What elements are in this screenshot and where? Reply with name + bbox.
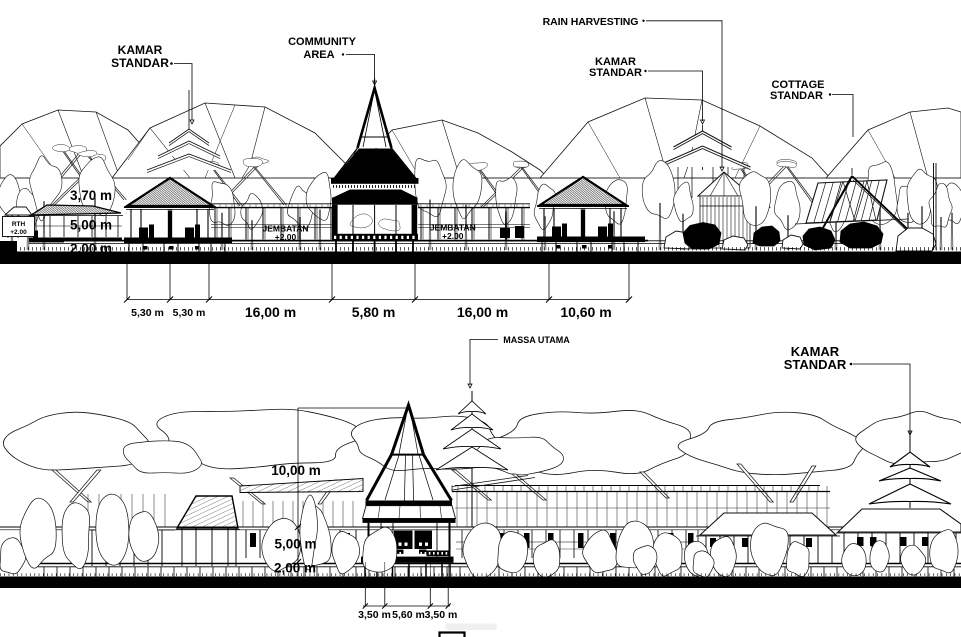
svg-text:RAIN HARVESTING: RAIN HARVESTING [543, 16, 639, 28]
svg-text:+2.00: +2.00 [442, 231, 464, 241]
svg-text:5,60 m: 5,60 m [392, 609, 425, 621]
svg-text:STANDAR: STANDAR [111, 56, 169, 70]
svg-text:+2.00: +2.00 [10, 229, 27, 236]
svg-text:2,00 m: 2,00 m [70, 241, 112, 256]
svg-text:5,00 m: 5,00 m [274, 537, 316, 552]
svg-text:STANDAR: STANDAR [589, 67, 642, 79]
svg-text:5,30 m: 5,30 m [131, 307, 164, 319]
svg-text:STANDAR: STANDAR [784, 357, 847, 372]
svg-text:16,00 m: 16,00 m [245, 304, 296, 320]
svg-text:5,80 m: 5,80 m [352, 304, 396, 320]
svg-text:10,60 m: 10,60 m [560, 304, 611, 320]
svg-text:16,00 m: 16,00 m [457, 304, 508, 320]
svg-text:COMMUNITY: COMMUNITY [288, 36, 356, 48]
svg-text:10,00 m: 10,00 m [271, 463, 321, 478]
svg-text:3,70 m: 3,70 m [70, 188, 112, 203]
svg-text:KAMAR: KAMAR [118, 43, 163, 57]
svg-text:5,30 m: 5,30 m [173, 307, 206, 319]
svg-text:3,50 m: 3,50 m [425, 609, 458, 621]
svg-text:AREA: AREA [303, 49, 334, 61]
svg-text:RTH: RTH [12, 221, 26, 228]
svg-text:MASSA UTAMA: MASSA UTAMA [503, 335, 570, 345]
svg-text:2,00 m: 2,00 m [274, 561, 316, 576]
svg-text:STANDAR: STANDAR [770, 90, 823, 102]
svg-text:5,00 m: 5,00 m [70, 218, 112, 233]
svg-text:3,50 m: 3,50 m [358, 609, 391, 621]
